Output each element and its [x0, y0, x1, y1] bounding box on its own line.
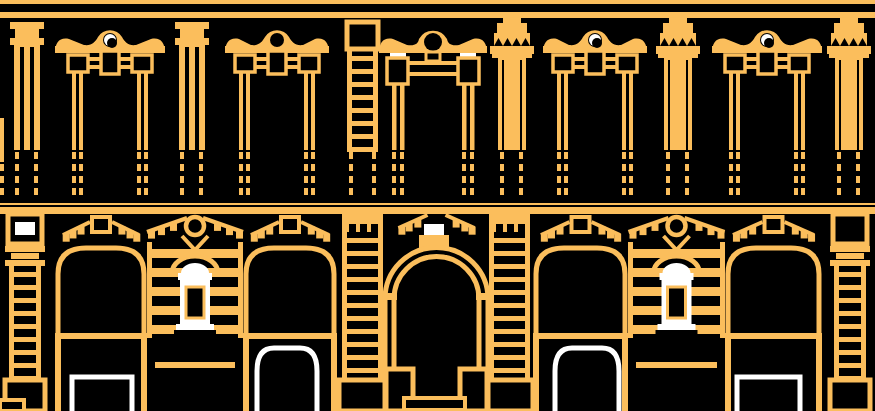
- railing-bar: [801, 152, 805, 159]
- dentil: [398, 227, 405, 235]
- capital-tier: [669, 15, 687, 23]
- collar-horn: [827, 46, 831, 54]
- dentil: [258, 230, 265, 238]
- window-jamb: [564, 72, 568, 150]
- quoin-rung: [342, 238, 383, 243]
- railing-bar: [622, 152, 626, 159]
- building-facade-illustration: [0, 0, 875, 411]
- capital-tier: [5, 260, 45, 266]
- railing-bar: [856, 188, 860, 195]
- pilaster-shaft: [14, 45, 40, 150]
- railing-bar: [0, 176, 4, 183]
- window-jamb: [311, 72, 315, 150]
- oculus: [424, 33, 442, 51]
- capital-tier: [5, 246, 45, 252]
- railing-bar: [34, 188, 38, 195]
- dentil: [740, 230, 747, 238]
- quoin-rung: [489, 277, 530, 282]
- quoin-rung: [342, 251, 383, 256]
- railing-bar: [180, 176, 184, 183]
- window-jamb: [392, 84, 397, 150]
- dentil: [718, 231, 725, 239]
- railing-bar: [144, 176, 148, 183]
- window-jamb: [470, 84, 475, 150]
- capital-tier: [11, 253, 39, 259]
- capital-tier: [836, 253, 864, 259]
- railing-bar: [239, 188, 243, 195]
- railing-bar: [349, 152, 353, 159]
- railing-bar: [199, 176, 203, 183]
- railing-bar: [372, 176, 376, 183]
- quoin-rung: [347, 147, 378, 152]
- shaft-line: [502, 60, 504, 150]
- dentil: [414, 220, 421, 228]
- quoin-rung: [342, 277, 383, 282]
- dentil: [598, 227, 605, 235]
- quoin-rung: [342, 329, 383, 334]
- railing-bar: [400, 188, 404, 195]
- railing-bar: [304, 188, 308, 195]
- railing-bar: [34, 164, 38, 171]
- niche-lintel: [178, 273, 212, 280]
- quoin-cap-notch: [507, 224, 514, 232]
- ladder-rung: [9, 285, 41, 290]
- dentil: [133, 234, 140, 242]
- railing-bar: [629, 164, 633, 171]
- quoin-rung: [489, 290, 530, 295]
- dentil: [323, 234, 330, 242]
- storefront-beam: [725, 333, 822, 339]
- quoin-rung: [342, 342, 383, 347]
- dentil: [652, 223, 659, 231]
- quoin-top-block: [347, 22, 378, 49]
- railing-bar: [199, 152, 203, 159]
- quoin-rung: [347, 121, 378, 126]
- niche-base-gap: [174, 330, 216, 338]
- door-pilaster-cap: [476, 293, 487, 300]
- railing-bar: [392, 188, 396, 195]
- railing-bar: [79, 176, 83, 183]
- door-pilaster: [392, 299, 397, 369]
- railing-bar: [736, 164, 740, 171]
- cornice-band: [0, 0, 875, 4]
- railing-bar: [629, 152, 633, 159]
- railing-bar: [519, 176, 523, 183]
- railing-bar: [629, 176, 633, 183]
- railing-bar: [199, 164, 203, 171]
- frieze-block: [458, 58, 479, 84]
- transom-beam: [636, 362, 717, 368]
- niche-sill: [176, 324, 214, 330]
- railing-bar: [685, 152, 689, 159]
- cornice-band: [0, 12, 875, 18]
- frieze-block: [68, 55, 88, 72]
- railing-bar: [666, 176, 670, 183]
- railing-bar: [311, 152, 315, 159]
- frieze-block: [299, 55, 319, 72]
- window-jamb: [729, 72, 733, 150]
- railing-bar: [137, 188, 141, 195]
- quoin-rung: [342, 303, 383, 308]
- ladder-rung: [834, 350, 866, 355]
- hood-bracket: [765, 217, 783, 232]
- window-jamb: [801, 72, 805, 150]
- railing-bar: [79, 152, 83, 159]
- window-jamb: [79, 72, 83, 150]
- railing-bar: [304, 164, 308, 171]
- dentil: [708, 227, 715, 235]
- railing-bar: [736, 152, 740, 159]
- railing-bar: [470, 152, 474, 159]
- curb-step: [0, 400, 24, 411]
- window-jamb: [462, 84, 467, 150]
- railing-bar: [199, 188, 203, 195]
- railing-bar: [304, 152, 308, 159]
- railing-bar: [239, 164, 243, 171]
- railing-bar: [144, 188, 148, 195]
- quoin-rung: [347, 69, 378, 74]
- quoin-rung: [489, 342, 530, 347]
- dentil: [63, 234, 70, 242]
- keystone-highlight: [424, 224, 444, 235]
- capital-tier: [834, 23, 864, 33]
- ladder-rung: [834, 285, 866, 290]
- railing-bar: [137, 164, 141, 171]
- railing-bar: [15, 188, 19, 195]
- railing-bar: [500, 164, 504, 171]
- frieze-block: [789, 55, 809, 72]
- railing-bar: [801, 164, 805, 171]
- ladder-rung: [834, 324, 866, 329]
- shaft-line: [668, 60, 670, 150]
- quoin-rung: [342, 316, 383, 321]
- niche-lintel: [660, 273, 694, 280]
- railing-bar: [246, 152, 250, 159]
- railing-bar: [462, 176, 466, 183]
- railing-bar: [372, 188, 376, 195]
- oculus-core: [764, 38, 774, 48]
- railing-bar: [564, 152, 568, 159]
- hood-bracket: [572, 217, 590, 232]
- railing-bar: [729, 176, 733, 183]
- frieze-block: [553, 55, 573, 72]
- quoin-rung: [342, 264, 383, 269]
- dentil: [214, 223, 221, 231]
- dentil: [118, 227, 125, 235]
- storefront-beam: [533, 333, 628, 339]
- storefront-beam: [243, 333, 337, 339]
- railing-bar: [837, 176, 841, 183]
- railing-bar: [685, 176, 689, 183]
- frieze-block: [235, 55, 255, 72]
- capital-collar: [492, 46, 532, 58]
- capital-tier: [503, 15, 521, 23]
- railing-bar: [470, 188, 474, 195]
- door-threshold-step: [404, 398, 465, 410]
- oculus-core: [107, 38, 117, 48]
- shaft-flute: [195, 47, 199, 150]
- railing-bar: [462, 164, 466, 171]
- railing-bar: [794, 176, 798, 183]
- capital-tier: [180, 29, 204, 38]
- pilaster-shaft: [179, 45, 205, 150]
- dentil: [308, 227, 315, 235]
- railing-bar: [736, 176, 740, 183]
- ladder-rung: [834, 311, 866, 316]
- railing-bar: [180, 188, 184, 195]
- collar-horn: [530, 46, 534, 54]
- railing-bar: [629, 188, 633, 195]
- capital-tier: [175, 38, 209, 45]
- railing-bar: [557, 152, 561, 159]
- window-jamb: [304, 72, 308, 150]
- ladder-rung: [9, 324, 41, 329]
- railing-bar: [794, 188, 798, 195]
- railing-bar: [557, 176, 561, 183]
- railing-bar: [0, 164, 4, 171]
- railing-bar: [500, 152, 504, 159]
- string-band: [0, 207, 875, 214]
- capital-tier: [10, 38, 44, 45]
- railing-bar: [72, 152, 76, 159]
- dentil: [548, 230, 555, 238]
- railing-bar: [500, 188, 504, 195]
- frieze-block: [132, 55, 152, 72]
- railing-bar: [519, 164, 523, 171]
- railing-bar: [622, 176, 626, 183]
- dentil: [749, 227, 756, 235]
- window-jamb: [137, 72, 141, 150]
- upper-pilaster: [10, 22, 44, 150]
- quoin-rung: [347, 56, 378, 61]
- dentil: [614, 234, 621, 242]
- railing-bar: [0, 188, 4, 195]
- ladder-rail: [834, 266, 839, 380]
- window-jamb: [557, 72, 561, 150]
- railing-bar: [311, 176, 315, 183]
- railing-bar: [729, 188, 733, 195]
- dentil: [406, 223, 413, 231]
- railing-bar: [144, 164, 148, 171]
- dentil: [557, 227, 564, 235]
- capital-tier: [840, 15, 858, 23]
- storefront-post: [816, 339, 822, 411]
- quoin-rung: [347, 82, 378, 87]
- door-pilaster: [477, 299, 482, 369]
- capital-tier: [15, 29, 39, 38]
- window-jamb: [400, 84, 405, 150]
- window-jamb: [72, 72, 76, 150]
- dentil: [461, 223, 468, 231]
- railing-bar: [801, 176, 805, 183]
- shaft-line: [839, 60, 841, 150]
- railing-bar: [79, 164, 83, 171]
- hood-bracket: [281, 217, 299, 232]
- quoin-cap-notch: [349, 224, 356, 232]
- railing-bar: [400, 152, 404, 159]
- frieze-block: [617, 55, 637, 72]
- quoin-cap-notch: [518, 224, 525, 232]
- crest-medallion: [668, 217, 686, 235]
- ladder-rung: [9, 272, 41, 277]
- dentil: [607, 230, 614, 238]
- shaft-flute: [185, 47, 189, 150]
- railing-bar: [557, 188, 561, 195]
- ladder-rung: [834, 337, 866, 342]
- dentil: [696, 223, 703, 231]
- quoin-base: [339, 380, 386, 411]
- railing-bar: [349, 176, 353, 183]
- storefront-post: [55, 339, 61, 411]
- dentil: [453, 220, 460, 228]
- railing-bar: [144, 152, 148, 159]
- railing-bar: [349, 164, 353, 171]
- quoin-rung: [347, 108, 378, 113]
- storefront-post: [725, 339, 731, 411]
- ladder-rung: [9, 363, 41, 368]
- railing-bar: [462, 152, 466, 159]
- railing-bar: [372, 164, 376, 171]
- window-jamb: [736, 72, 740, 150]
- edge-capital-highlight: [15, 222, 35, 235]
- capital-tier: [175, 22, 209, 29]
- pilaster-base: [830, 380, 870, 411]
- ladder-rung: [834, 298, 866, 303]
- shaft-flute: [20, 47, 24, 150]
- railing-bar: [519, 152, 523, 159]
- frieze-block: [725, 55, 745, 72]
- ladder-rail: [36, 266, 41, 380]
- railing-bar: [349, 188, 353, 195]
- niche-core: [667, 286, 687, 319]
- string-course: [0, 203, 875, 214]
- railing-bar: [15, 164, 19, 171]
- railing-bar: [137, 176, 141, 183]
- capital-tier: [497, 23, 527, 33]
- dentil: [251, 234, 258, 242]
- railing-bar: [239, 152, 243, 159]
- railing-bar: [400, 176, 404, 183]
- railing-bar: [246, 164, 250, 171]
- railing-bar: [500, 176, 504, 183]
- railing-bar: [34, 176, 38, 183]
- quoin-rung: [489, 316, 530, 321]
- quoin-rung: [489, 355, 530, 360]
- ladder-rail: [861, 266, 866, 380]
- railing-bar: [34, 152, 38, 159]
- dentil: [69, 230, 76, 238]
- quoin-cap-notch: [360, 224, 367, 232]
- storefront-post: [331, 339, 337, 411]
- dentil: [801, 230, 808, 238]
- crest-medallion: [186, 217, 204, 235]
- railing-bar: [0, 152, 4, 159]
- railing-bar: [622, 188, 626, 195]
- railing-bar: [392, 176, 396, 183]
- dentil: [469, 227, 476, 235]
- door-pilaster-cap: [386, 293, 397, 300]
- railing-bar: [72, 164, 76, 171]
- railing-bar: [622, 164, 626, 171]
- railing-bar: [304, 176, 308, 183]
- frieze-center-block: [586, 51, 604, 74]
- dentil: [148, 231, 155, 239]
- railing-bar: [685, 188, 689, 195]
- railing-bar: [856, 176, 860, 183]
- frieze-center-block: [426, 52, 440, 61]
- railing-bar: [79, 188, 83, 195]
- hood-bracket: [92, 217, 110, 232]
- railing-bar: [837, 188, 841, 195]
- string-line: [0, 203, 875, 205]
- railing-bar: [137, 152, 141, 159]
- dentil: [158, 227, 165, 235]
- niche-base-gap: [656, 330, 698, 338]
- quoin-cap-notch: [496, 224, 503, 232]
- ladder-rung: [9, 350, 41, 355]
- ladder-rung: [834, 363, 866, 368]
- niche-sill: [658, 324, 696, 330]
- capital-tier: [663, 23, 693, 33]
- dentil: [236, 231, 243, 239]
- dentil: [541, 234, 548, 242]
- window-jamb: [629, 72, 633, 150]
- dentil: [316, 230, 323, 238]
- dentil: [733, 234, 740, 242]
- railing-bar: [15, 176, 19, 183]
- collar-horn: [656, 46, 660, 54]
- dentil: [226, 227, 233, 235]
- quoin-rung: [347, 134, 378, 139]
- railing-bar: [856, 164, 860, 171]
- railing-bar: [564, 188, 568, 195]
- window-jamb: [246, 72, 250, 150]
- quoin-rung: [489, 251, 530, 256]
- oculus: [270, 33, 284, 47]
- quoin-rung: [489, 368, 530, 373]
- oculus-core: [592, 38, 602, 48]
- railing-bar: [666, 188, 670, 195]
- frieze-center-block: [758, 51, 776, 74]
- railing-bar: [856, 152, 860, 159]
- railing-bar: [557, 164, 561, 171]
- railing-bar: [72, 176, 76, 183]
- shaft-line: [857, 60, 859, 150]
- collar-horn: [867, 46, 871, 54]
- frieze-center-block: [101, 51, 119, 74]
- quoin-rung: [342, 355, 383, 360]
- edge-capital-box: [833, 214, 867, 244]
- dentil: [78, 227, 85, 235]
- railing-bar: [519, 188, 523, 195]
- railing-bar: [794, 152, 798, 159]
- collar-horn: [696, 46, 700, 54]
- transom-beam: [155, 362, 235, 368]
- dentil: [170, 223, 177, 231]
- railing-bar: [564, 164, 568, 171]
- railing-bar: [564, 176, 568, 183]
- upper-pilaster: [175, 22, 209, 150]
- window-jamb: [794, 72, 798, 150]
- edge-pilaster: [830, 214, 870, 411]
- ladder-rung: [9, 311, 41, 316]
- storefront-beam: [55, 333, 147, 339]
- railing-bar: [246, 188, 250, 195]
- railing-bar: [685, 164, 689, 171]
- ladder-rail: [9, 266, 14, 380]
- frieze-block: [387, 58, 408, 84]
- railing-bar: [72, 188, 76, 195]
